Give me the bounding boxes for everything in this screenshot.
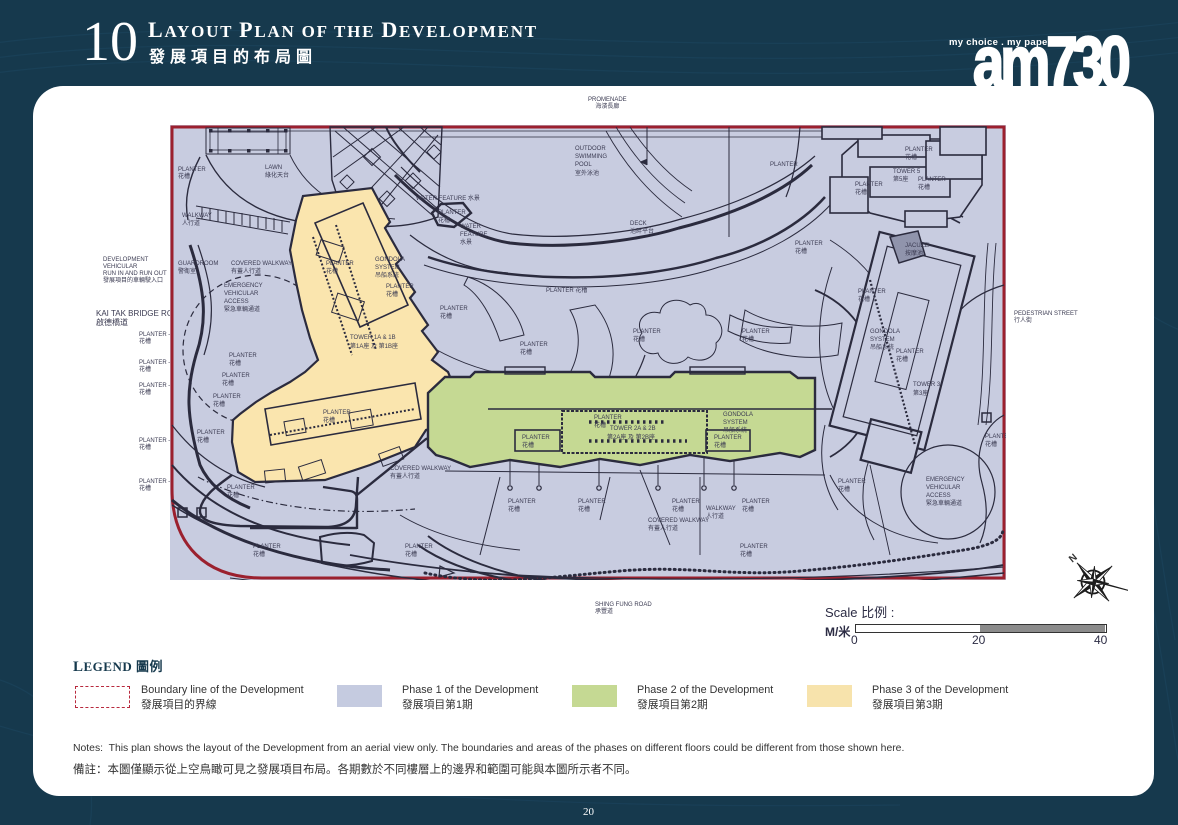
svg-text:PLANTER: PLANTER	[178, 167, 206, 173]
svg-text:有蓋人行道: 有蓋人行道	[648, 524, 678, 532]
svg-text:按摩池: 按摩池	[905, 249, 923, 257]
svg-text:花槽: 花槽	[855, 188, 867, 196]
svg-text:吊船系統: 吊船系統	[723, 426, 747, 434]
svg-text:TOWER 2A & 2B: TOWER 2A & 2B	[610, 426, 656, 432]
svg-text:PLANTER: PLANTER	[770, 162, 798, 168]
svg-text:PLANTER: PLANTER	[858, 289, 886, 295]
svg-text:人行道: 人行道	[182, 219, 200, 227]
svg-text:花槽: 花槽	[740, 550, 752, 558]
svg-text:TOWER 5: TOWER 5	[893, 169, 921, 175]
svg-text:WALKWAY: WALKWAY	[182, 213, 212, 219]
svg-text:SYSTEM: SYSTEM	[723, 420, 748, 426]
svg-text:花槽: 花槽	[229, 359, 241, 367]
svg-text:PLANTER: PLANTER	[438, 210, 466, 216]
svg-text:花槽: 花槽	[520, 348, 532, 356]
svg-text:吊船系統: 吊船系統	[870, 343, 894, 351]
svg-text:GUARDROOM: GUARDROOM	[178, 261, 218, 267]
svg-text:DECK: DECK	[630, 221, 647, 227]
svg-text:SWIMMING: SWIMMING	[575, 154, 607, 160]
svg-text:PLANTER: PLANTER	[742, 499, 770, 505]
svg-text:WATER FEATURE 水景: WATER FEATURE 水景	[416, 194, 480, 202]
svg-text:PLANTER 花槽: PLANTER 花槽	[546, 286, 587, 294]
svg-text:PLANTER: PLANTER	[229, 353, 257, 359]
svg-text:PLANTER: PLANTER	[222, 373, 250, 379]
svg-text:警衛室: 警衛室	[178, 267, 196, 275]
svg-text:花槽: 花槽	[918, 183, 930, 191]
svg-text:花槽: 花槽	[795, 247, 807, 255]
svg-text:GONDOLA: GONDOLA	[723, 412, 753, 418]
svg-text:VEHICULAR: VEHICULAR	[926, 485, 961, 491]
svg-text:花槽: 花槽	[578, 505, 590, 513]
svg-text:PLANTER: PLANTER	[740, 544, 768, 550]
svg-text:GONDOLA: GONDOLA	[375, 257, 405, 263]
svg-text:緊急車輛通道: 緊急車輛通道	[926, 499, 962, 507]
svg-text:花槽: 花槽	[178, 172, 190, 180]
svg-text:PLANTER: PLANTER	[633, 329, 661, 335]
svg-text:有蓋人行道: 有蓋人行道	[390, 472, 420, 480]
svg-text:COVERED WALKWAY: COVERED WALKWAY	[390, 466, 451, 472]
svg-text:花槽: 花槽	[213, 400, 225, 408]
svg-text:有蓋人行道: 有蓋人行道	[231, 267, 261, 275]
svg-text:COVERED WALKWAY: COVERED WALKWAY	[648, 518, 709, 524]
svg-text:花槽: 花槽	[714, 441, 726, 449]
svg-text:PLANTER: PLANTER	[672, 499, 700, 505]
svg-text:PLANTER: PLANTER	[838, 479, 866, 485]
svg-text:花槽: 花槽	[222, 379, 234, 387]
svg-text:PLANTER: PLANTER	[213, 394, 241, 400]
svg-text:花槽: 花槽	[508, 505, 520, 513]
svg-text:花槽: 花槽	[838, 485, 850, 493]
svg-text:TOWER 3: TOWER 3	[913, 382, 941, 388]
svg-text:花槽: 花槽	[742, 335, 754, 343]
svg-text:花槽: 花槽	[522, 441, 534, 449]
svg-text:水景: 水景	[460, 238, 472, 246]
svg-text:PLANTER: PLANTER	[855, 182, 883, 188]
svg-text:第1A座 及 第1B座: 第1A座 及 第1B座	[350, 342, 398, 350]
svg-text:PLANTER: PLANTER	[508, 499, 536, 505]
svg-text:WALKWAY: WALKWAY	[706, 506, 736, 512]
svg-text:EMERGENCY: EMERGENCY	[224, 283, 263, 289]
svg-text:PLANTER: PLANTER	[522, 435, 550, 441]
svg-text:PLANTER: PLANTER	[326, 261, 354, 267]
svg-text:POOL: POOL	[575, 162, 592, 168]
svg-text:PLANTER: PLANTER	[197, 430, 225, 436]
svg-text:PLANTER: PLANTER	[905, 147, 933, 153]
svg-text:PLANTER: PLANTER	[323, 410, 351, 416]
svg-text:花槽: 花槽	[672, 505, 684, 513]
svg-text:LAWN: LAWN	[265, 165, 282, 171]
svg-text:PLANTER: PLANTER	[742, 329, 770, 335]
svg-text:花槽: 花槽	[905, 153, 917, 161]
svg-text:EMERGENCY: EMERGENCY	[926, 477, 965, 483]
svg-text:PLANTER: PLANTER	[594, 415, 622, 421]
svg-text:PLANTER: PLANTER	[405, 544, 433, 550]
svg-text:SYSTEM: SYSTEM	[375, 265, 400, 271]
svg-text:花槽: 花槽	[386, 290, 398, 298]
svg-text:第5座: 第5座	[893, 175, 908, 183]
svg-text:JACUZZI: JACUZZI	[905, 243, 930, 249]
svg-text:ACCESS: ACCESS	[224, 299, 249, 305]
svg-text:花槽: 花槽	[896, 355, 908, 363]
svg-text:PLANTER: PLANTER	[918, 177, 946, 183]
svg-text:PLANTER: PLANTER	[578, 499, 606, 505]
svg-text:花槽: 花槽	[440, 312, 452, 320]
svg-text:花槽: 花槽	[227, 491, 239, 499]
svg-text:吊船系統: 吊船系統	[375, 271, 399, 279]
svg-text:花槽: 花槽	[985, 440, 997, 448]
svg-text:VEHICULAR: VEHICULAR	[224, 291, 259, 297]
svg-text:FEATURE: FEATURE	[460, 232, 488, 238]
svg-text:第3座: 第3座	[913, 389, 928, 397]
svg-text:緊急車輛通道: 緊急車輛通道	[224, 305, 260, 313]
svg-text:PLANTER: PLANTER	[386, 284, 414, 290]
svg-text:PLANTER: PLANTER	[520, 342, 548, 348]
svg-text:花槽: 花槽	[594, 421, 606, 429]
svg-text:PLANTER: PLANTER	[227, 485, 255, 491]
svg-text:PLANTER: PLANTER	[253, 544, 281, 550]
svg-text:花槽: 花槽	[405, 550, 417, 558]
svg-text:SYSTEM: SYSTEM	[870, 337, 895, 343]
svg-text:花槽: 花槽	[253, 550, 265, 558]
svg-text:花槽: 花槽	[197, 436, 209, 444]
svg-text:PLANTER: PLANTER	[714, 435, 742, 441]
svg-text:花槽: 花槽	[326, 267, 338, 275]
svg-text:花槽: 花槽	[323, 416, 335, 424]
svg-text:PLANTER: PLANTER	[985, 434, 1006, 440]
svg-text:WATER: WATER	[460, 224, 482, 230]
svg-text:綠化天台: 綠化天台	[265, 171, 289, 179]
svg-text:花槽: 花槽	[438, 216, 450, 224]
svg-text:花槽: 花槽	[633, 335, 645, 343]
svg-text:室外泳池: 室外泳池	[575, 169, 599, 177]
svg-text:ACCESS: ACCESS	[926, 493, 951, 499]
svg-text:第2A座 及 第2B座: 第2A座 及 第2B座	[607, 433, 655, 441]
svg-text:PLANTER: PLANTER	[440, 306, 468, 312]
svg-text:TOWER 1A & 1B: TOWER 1A & 1B	[350, 335, 396, 341]
svg-text:PLANTER: PLANTER	[896, 349, 924, 355]
svg-text:OUTDOOR: OUTDOOR	[575, 146, 606, 152]
svg-text:COVERED WALKWAY: COVERED WALKWAY	[231, 261, 292, 267]
svg-text:池畔平台: 池畔平台	[630, 227, 654, 235]
svg-text:PLANTER: PLANTER	[795, 241, 823, 247]
svg-text:花槽: 花槽	[742, 505, 754, 513]
svg-text:花槽: 花槽	[858, 295, 870, 303]
svg-text:GONDOLA: GONDOLA	[870, 329, 900, 335]
